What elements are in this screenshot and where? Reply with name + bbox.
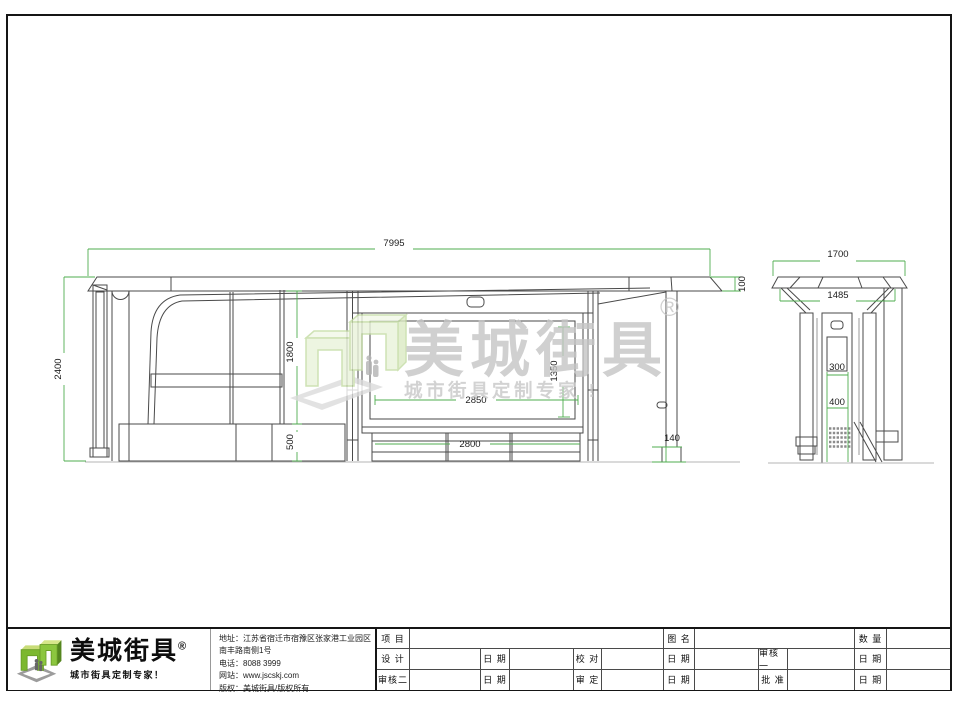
label-review2-date: 日 期 xyxy=(481,670,510,690)
watermark-figures-icon xyxy=(366,355,379,377)
field-finalize-date-value xyxy=(695,670,759,690)
dim-front-total-height: 2400 xyxy=(53,358,64,379)
field-design-date-value xyxy=(510,649,574,669)
field-project-value xyxy=(410,629,664,649)
field-review1-value xyxy=(788,649,855,669)
label-review2: 审核二 xyxy=(377,670,410,690)
field-proofread-value xyxy=(602,649,664,669)
label-review1: 审核一 xyxy=(759,649,788,669)
title-block-table: 项 目 图 名 数 量 设 计 日 期 校 对 日 期 审核一 日 期 审核二 … xyxy=(375,629,950,690)
field-approve-value xyxy=(788,670,855,690)
label-drawing-name: 图 名 xyxy=(664,629,695,649)
label-design: 设 计 xyxy=(377,649,410,669)
company-copyright: 版权：美城街具/版权所有 xyxy=(219,683,375,695)
field-review2-date-value xyxy=(510,670,574,690)
field-review2-value xyxy=(410,670,481,690)
field-drawing-name-value xyxy=(695,629,855,649)
title-block: 美城街具® 城市街具定制专家！ 地址：江苏省宿迁市宿豫区张家港工业园区南丰路南侧… xyxy=(8,627,950,690)
company-brand-name: 美城街具® xyxy=(70,639,188,664)
field-review1-date-value xyxy=(887,649,950,669)
dim-post-base: 140 xyxy=(664,433,680,444)
company-logo: 美城街具® 城市街具定制专家！ xyxy=(8,629,210,690)
registered-mark: ® xyxy=(178,640,188,652)
watermark-tagline-text: 城市街具定制专家 ! xyxy=(404,380,598,401)
company-phone: 电话：8088 3999 xyxy=(219,658,375,670)
label-finalize: 审 定 xyxy=(574,670,602,690)
dim-front-clear-height: 1800 xyxy=(285,341,296,362)
watermark-brand-text: 美城街具 xyxy=(404,317,668,384)
label-design-date: 日 期 xyxy=(481,649,510,669)
dim-side-grille: 400 xyxy=(829,397,845,408)
field-proofread-date-value xyxy=(695,649,759,669)
company-logo-icon xyxy=(16,633,64,687)
dim-front-base-height: 500 xyxy=(285,434,296,450)
brand-text: 美城街具 xyxy=(70,637,178,665)
dim-side-roof-width: 1700 xyxy=(827,249,848,260)
field-finalize-value xyxy=(602,670,664,690)
company-info: 地址：江苏省宿迁市宿豫区张家港工业园区南丰路南侧1号 电话：8088 3999 … xyxy=(210,629,375,690)
watermark: 美城街具 ® 城市街具定制专家 ! xyxy=(290,292,679,410)
label-project: 项 目 xyxy=(377,629,410,649)
label-finalize-date: 日 期 xyxy=(664,670,695,690)
dim-front-total-width: 7995 xyxy=(383,238,404,249)
company-website: 网站：www.jscskj.com xyxy=(219,670,375,682)
side-elevation xyxy=(768,277,934,463)
label-proofread-date: 日 期 xyxy=(664,649,695,669)
cad-drawing: 7995 2400 1800 500 100 2850 1350 2800 14… xyxy=(0,0,960,704)
dim-side-panel: 300 xyxy=(829,362,845,373)
field-design-value xyxy=(410,649,481,669)
field-approve-date-value xyxy=(887,670,950,690)
dim-front-roof-thickness: 100 xyxy=(737,276,748,292)
label-approve-date: 日 期 xyxy=(855,670,887,690)
blueprint-page: 7995 2400 1800 500 100 2850 1350 2800 14… xyxy=(0,0,960,704)
dim-bench-width: 2800 xyxy=(459,439,480,450)
company-tagline: 城市街具定制专家！ xyxy=(70,668,188,681)
field-quantity-value xyxy=(887,629,950,649)
label-quantity: 数 量 xyxy=(855,629,887,649)
company-address: 地址：江苏省宿迁市宿豫区张家港工业园区南丰路南侧1号 xyxy=(219,633,375,658)
watermark-logo-icon xyxy=(290,315,406,410)
label-proofread: 校 对 xyxy=(574,649,602,669)
label-review1-date: 日 期 xyxy=(855,649,887,669)
watermark-registered-mark: ® xyxy=(660,292,679,322)
dim-side-canopy-width: 1485 xyxy=(827,290,848,301)
label-approve: 批 准 xyxy=(759,670,788,690)
